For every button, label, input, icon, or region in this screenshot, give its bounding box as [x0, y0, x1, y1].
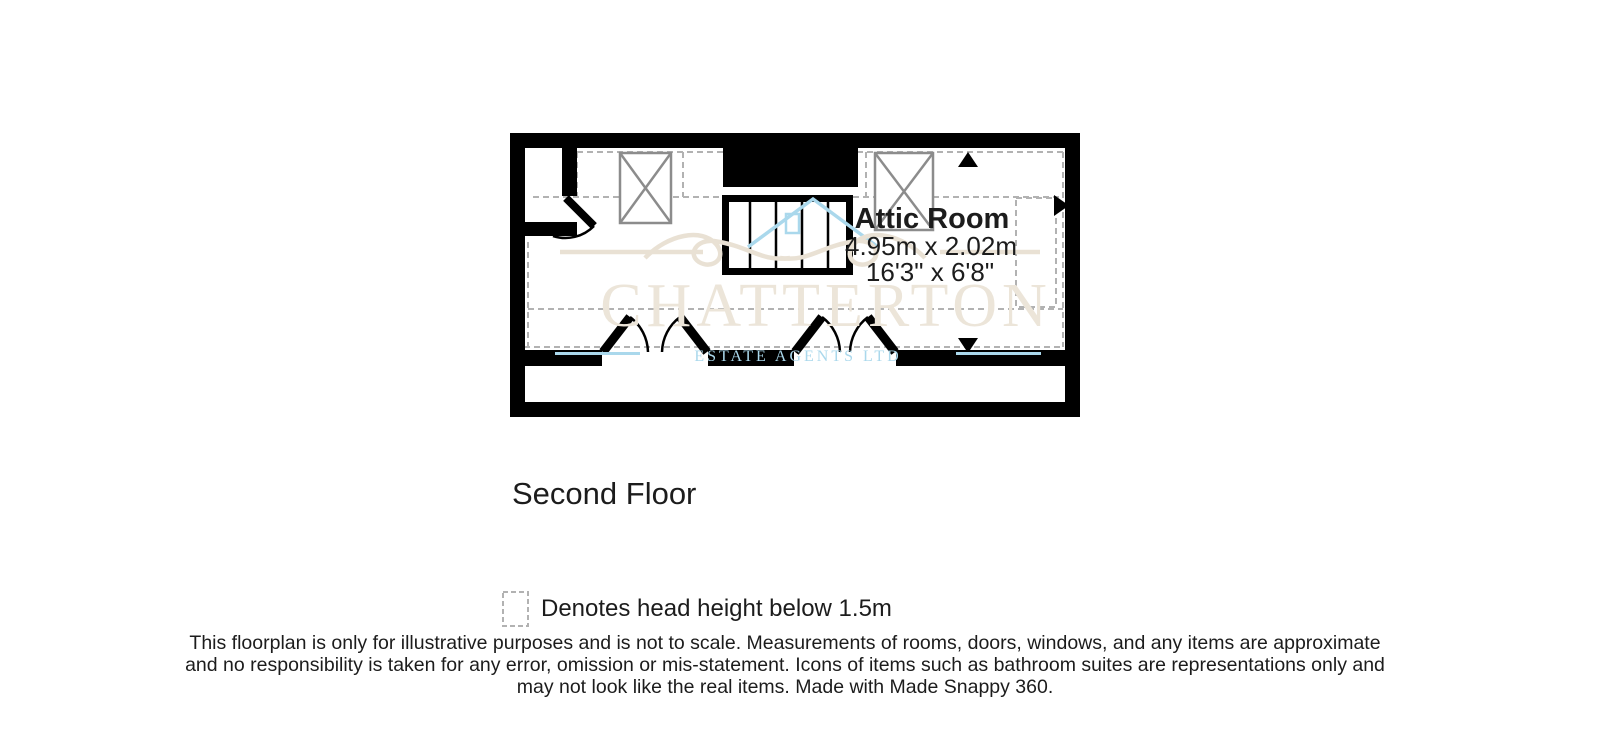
floor-label: Second Floor	[512, 476, 696, 511]
slope-arrow-up-icon	[958, 152, 978, 167]
disclaimer-line-1: This floorplan is only for illustrative …	[189, 632, 1380, 654]
watermark-rule-right	[956, 352, 1041, 355]
room-dims-imperial: 16'3" x 6'8"	[866, 257, 994, 287]
wall-top	[510, 133, 1080, 148]
wall-right	[1065, 133, 1080, 417]
floorplan-canvas: CHATTERTON ESTATE AGENTS LTD Attic Room …	[0, 0, 1600, 742]
disclaimer-line-3: may not look like the real items. Made w…	[517, 676, 1054, 698]
watermark-tagline: ESTATE AGENTS LTD	[694, 348, 901, 365]
wall-stub-horizontal	[510, 222, 577, 236]
floorplan-page: CHATTERTON ESTATE AGENTS LTD Attic Room …	[0, 0, 1600, 742]
disclaimer-line-2: and no responsibility is taken for any e…	[185, 654, 1385, 676]
legend-label: Denotes head height below 1.5m	[541, 595, 892, 622]
chimney-block	[723, 147, 858, 187]
wall-bottom	[510, 402, 1080, 417]
wall-left	[510, 133, 525, 417]
legend: Denotes head height below 1.5m	[503, 592, 892, 626]
head-height-swatch-icon	[503, 592, 528, 626]
skylight-left-icon	[620, 153, 671, 223]
wall-stub-vertical	[562, 148, 577, 196]
disclaimer: This floorplan is only for illustrative …	[185, 632, 1385, 698]
watermark-rule-left	[555, 352, 640, 355]
room-labels: Attic Room 4.95m x 2.02m 16'3" x 6'8"	[845, 203, 1017, 287]
